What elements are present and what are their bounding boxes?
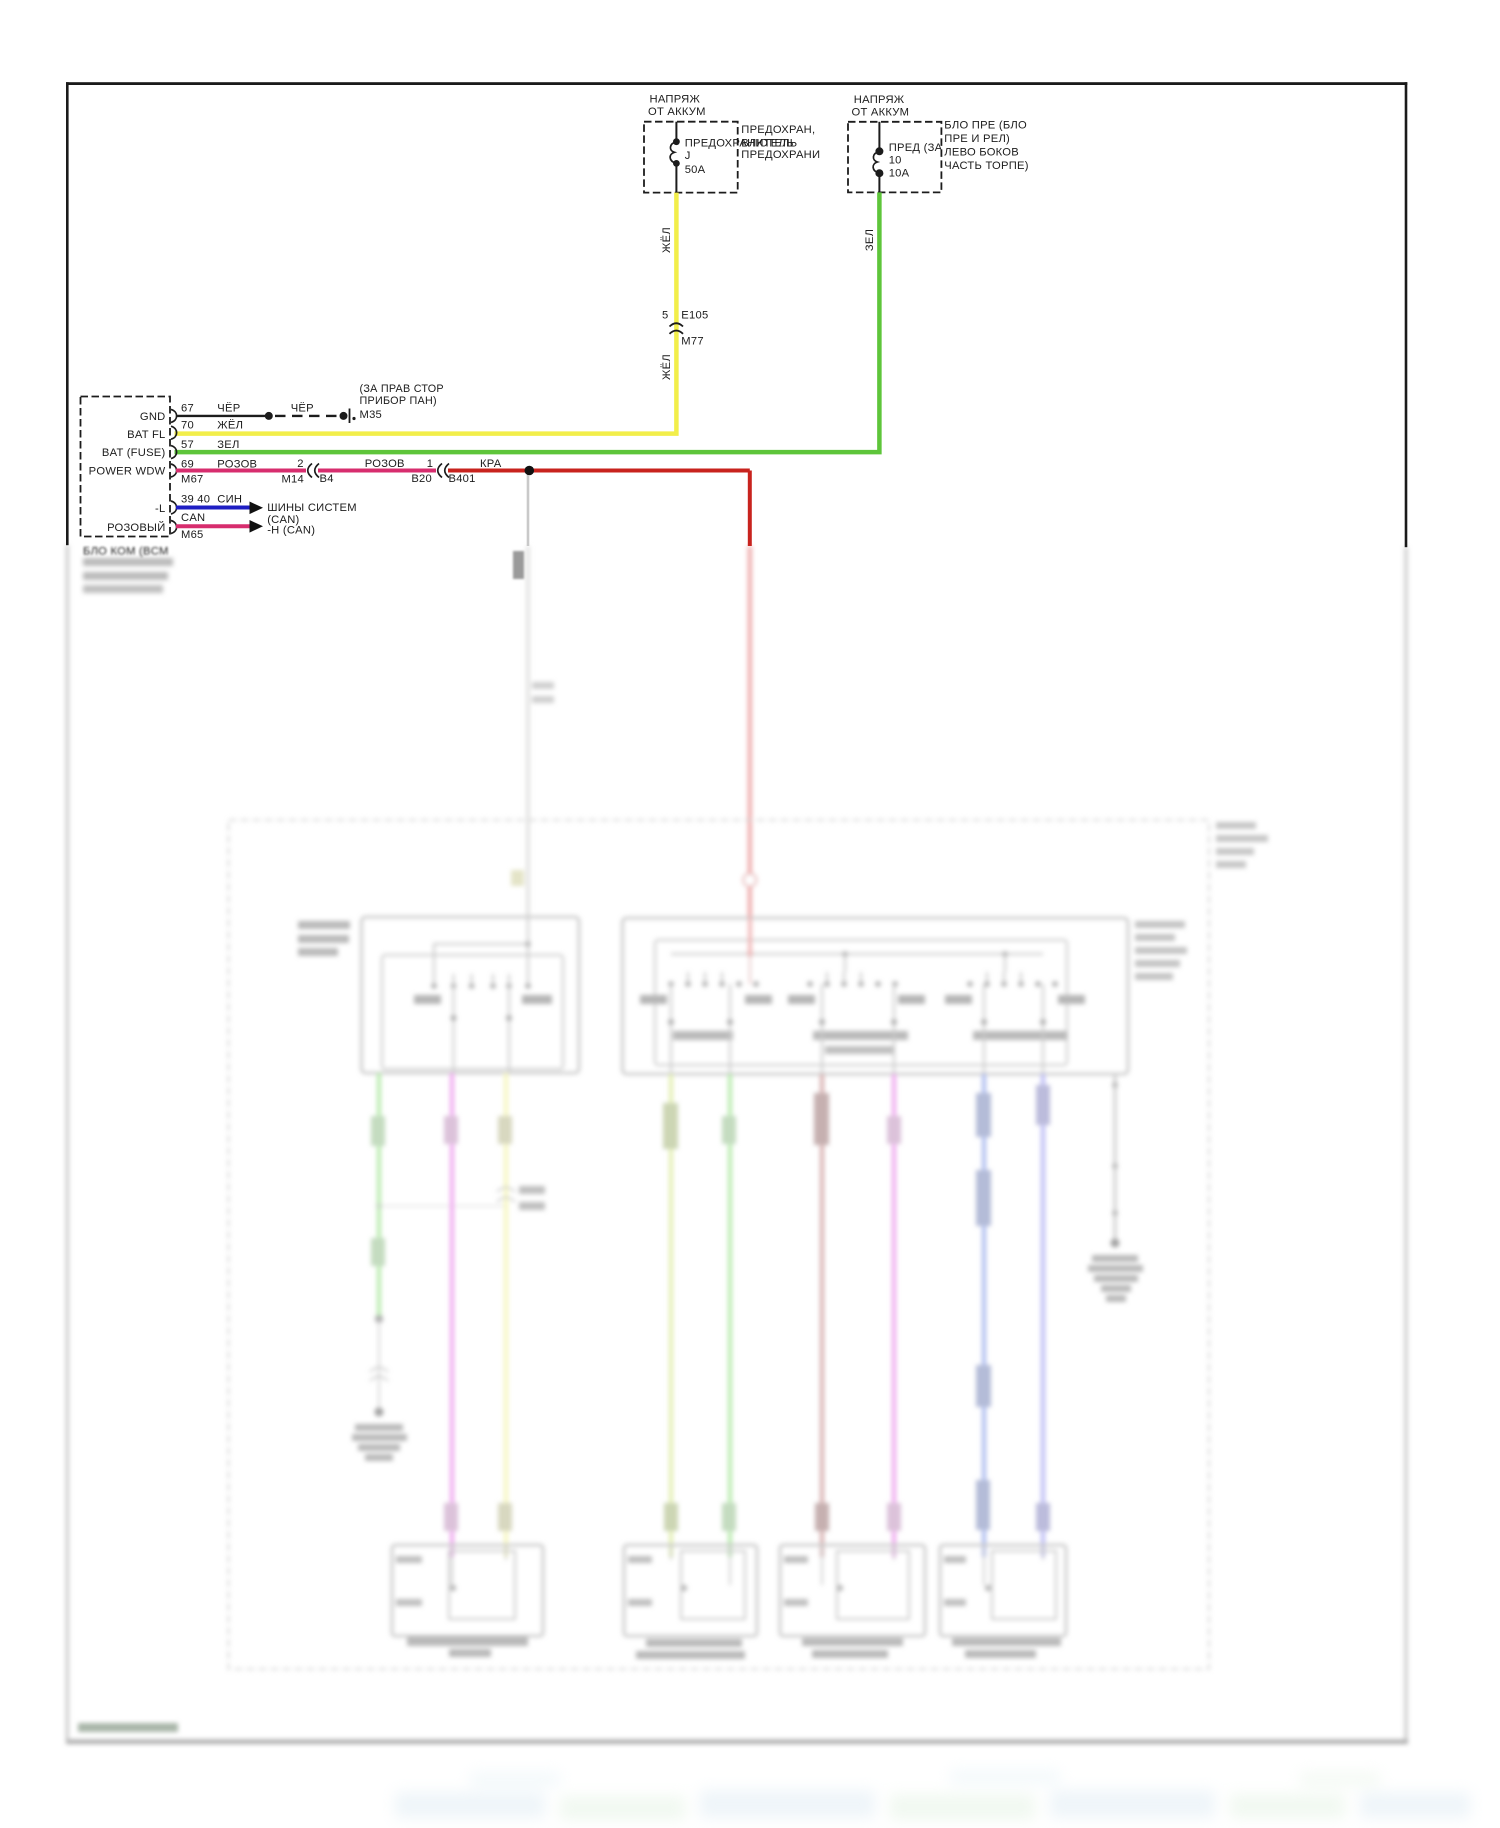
svg-text:РОЗОВ: РОЗОВ <box>217 458 257 470</box>
svg-text:10A: 10A <box>889 168 910 180</box>
svg-text:ЧЁР: ЧЁР <box>217 402 240 414</box>
svg-text:СИН: СИН <box>217 494 242 506</box>
svg-text:ПРЕДОХРАНИ: ПРЕДОХРАНИ <box>741 149 820 161</box>
svg-text:ОТ АККУМ: ОТ АККУМ <box>852 107 910 119</box>
svg-text:БЛО КОМ (BCM: БЛО КОМ (BCM <box>83 546 169 558</box>
svg-text:2: 2 <box>297 458 303 470</box>
svg-text:НАПРЯЖ: НАПРЯЖ <box>854 94 905 106</box>
svg-text:BAT (FUSE): BAT (FUSE) <box>102 447 166 459</box>
svg-text:М14: М14 <box>281 474 304 486</box>
svg-text:(ЗА ПРАВ СТОР: (ЗА ПРАВ СТОР <box>360 383 444 395</box>
svg-text:НАПРЯЖ: НАПРЯЖ <box>650 94 701 106</box>
svg-text:M65: M65 <box>181 529 204 541</box>
svg-text:ЖЁЛ: ЖЁЛ <box>661 227 673 253</box>
svg-text:ЛЕВО БОКОВ: ЛЕВО БОКОВ <box>944 147 1019 159</box>
svg-text:ЧАСТЬ ТОРПЕ): ЧАСТЬ ТОРПЕ) <box>944 160 1028 172</box>
svg-text:39 40: 39 40 <box>181 494 210 506</box>
svg-text:БЛО ПРЕ (БЛО: БЛО ПРЕ (БЛО <box>944 120 1027 132</box>
svg-text:E105: E105 <box>681 310 708 322</box>
svg-text:50A: 50A <box>685 164 706 176</box>
svg-text:М67: М67 <box>181 474 204 486</box>
svg-text:ЧЁР: ЧЁР <box>291 402 314 414</box>
svg-text:B401: B401 <box>449 473 476 485</box>
svg-text:1: 1 <box>427 458 433 470</box>
svg-text:ШИНЫ СИСТЕМ: ШИНЫ СИСТЕМ <box>267 502 357 514</box>
svg-text:M77: M77 <box>681 336 704 348</box>
svg-text:5: 5 <box>662 310 668 322</box>
svg-text:ЗЕЛ: ЗЕЛ <box>864 229 876 251</box>
svg-text:B4: B4 <box>320 473 334 485</box>
svg-text:ВЛЮТЕЛЬ: ВЛЮТЕЛЬ <box>741 137 797 149</box>
svg-text:РОЗОВЫЙ: РОЗОВЫЙ <box>107 521 165 534</box>
svg-text:РОЗОВ: РОЗОВ <box>365 458 405 470</box>
svg-text:ПРИБОР ПАН): ПРИБОР ПАН) <box>360 395 437 407</box>
svg-text:КРА: КРА <box>480 458 502 470</box>
svg-text:J: J <box>685 150 691 162</box>
svg-text:ЖЁЛ: ЖЁЛ <box>217 420 243 432</box>
svg-text:67: 67 <box>181 402 194 414</box>
svg-text:GND: GND <box>140 411 166 423</box>
svg-text:57: 57 <box>181 439 194 451</box>
svg-text:ПРЕ И РЕЛ): ПРЕ И РЕЛ) <box>944 133 1010 145</box>
svg-text:M35: M35 <box>360 409 383 421</box>
svg-text:ОТ АККУМ: ОТ АККУМ <box>648 106 706 118</box>
svg-text:CAN: CAN <box>181 512 205 524</box>
svg-text:ПРЕДОХРАН,: ПРЕДОХРАН, <box>741 124 815 136</box>
svg-text:10: 10 <box>889 155 902 167</box>
svg-text:B20: B20 <box>411 473 432 485</box>
svg-text:ЗЕЛ: ЗЕЛ <box>217 439 239 451</box>
svg-text:ПРЕД (ЗА: ПРЕД (ЗА <box>889 142 943 154</box>
svg-text:-H (CAN): -H (CAN) <box>267 524 315 536</box>
svg-text:ЖЁЛ: ЖЁЛ <box>661 354 673 380</box>
svg-text:-L: -L <box>155 503 165 515</box>
svg-text:BAT FL: BAT FL <box>127 429 165 441</box>
svg-text:70: 70 <box>181 420 194 432</box>
svg-text:69: 69 <box>181 458 194 470</box>
svg-text:POWER WDW: POWER WDW <box>89 466 166 478</box>
